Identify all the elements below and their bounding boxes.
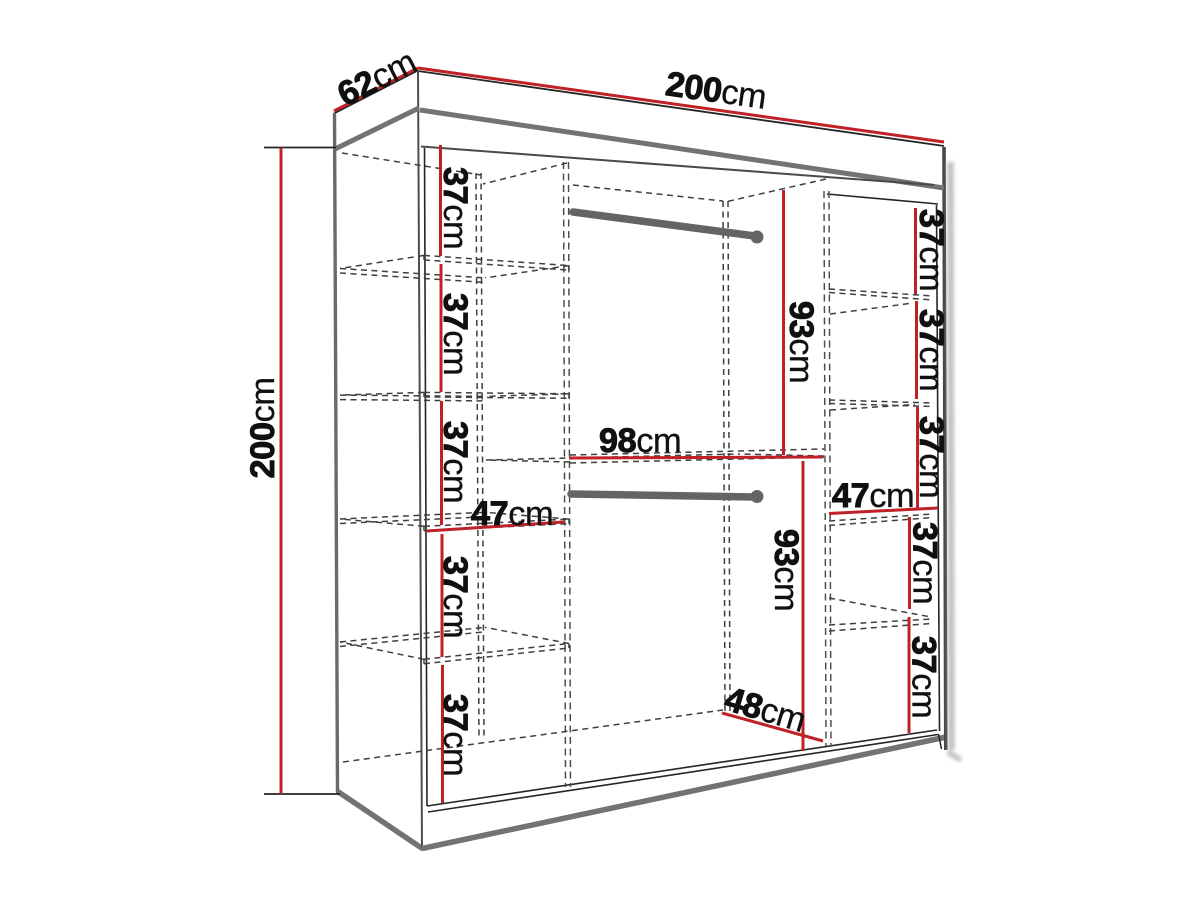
svg-text:200cm: 200cm bbox=[244, 377, 282, 478]
svg-text:93cm: 93cm bbox=[782, 301, 820, 383]
svg-text:47cm: 47cm bbox=[832, 477, 914, 515]
svg-text:37cm: 37cm bbox=[906, 522, 944, 604]
svg-text:37cm: 37cm bbox=[912, 309, 950, 391]
svg-text:37cm: 37cm bbox=[436, 293, 474, 375]
svg-text:47cm: 47cm bbox=[471, 495, 553, 533]
svg-text:37cm: 37cm bbox=[436, 694, 474, 776]
svg-text:93cm: 93cm bbox=[767, 529, 805, 611]
svg-text:37cm: 37cm bbox=[436, 421, 474, 503]
svg-text:37cm: 37cm bbox=[912, 209, 950, 291]
svg-text:37cm: 37cm bbox=[436, 167, 474, 249]
svg-text:37cm: 37cm bbox=[905, 636, 943, 718]
svg-text:37cm: 37cm bbox=[436, 556, 474, 638]
svg-text:37cm: 37cm bbox=[912, 416, 950, 498]
svg-text:98cm: 98cm bbox=[599, 422, 681, 460]
